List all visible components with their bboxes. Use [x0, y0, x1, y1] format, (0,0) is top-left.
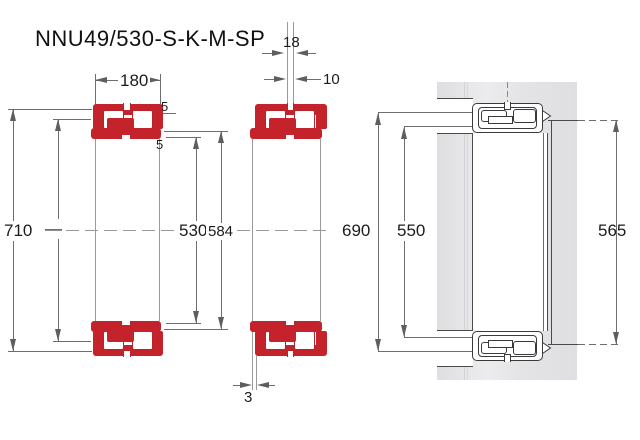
roller-right	[294, 331, 315, 350]
bore-centerline	[507, 82, 508, 103]
outer-ring-flange-right	[316, 331, 327, 356]
shaft-step-line	[543, 133, 544, 331]
roller-right	[132, 110, 153, 129]
roller-right-outline	[513, 109, 536, 123]
lubrication-slot	[504, 354, 511, 362]
inner-ring-groove	[285, 321, 295, 325]
clearance-band-top	[437, 98, 473, 134]
shaft-section	[472, 133, 548, 331]
dim-label-550: 550	[395, 221, 427, 241]
cage-step	[488, 116, 513, 124]
page-title: NNU49/530-S-K-M-SP	[35, 26, 265, 52]
lubrication-slot	[123, 103, 131, 110]
outer-ring-flange-right	[152, 331, 163, 356]
front-left-face-line	[95, 139, 96, 321]
sleeve-bottom-line	[548, 344, 578, 345]
lubrication-slot	[123, 350, 131, 357]
cage-step	[488, 340, 513, 348]
sleeve-edge-line	[551, 120, 552, 344]
roller-right	[132, 331, 153, 350]
dim-label-584: 584	[206, 223, 235, 240]
sleeve-top-line	[548, 120, 578, 121]
outer-ring-flange-right	[316, 104, 327, 129]
dim-label-5-top: 5	[160, 100, 169, 115]
cage-block	[107, 329, 134, 342]
offset-left-face-line	[252, 139, 253, 390]
dim-label-530: 530	[177, 221, 209, 241]
dim-label-690: 690	[340, 221, 372, 241]
cage-block	[269, 329, 296, 342]
lubrication-slot	[287, 103, 294, 110]
front-right-face-line	[159, 139, 160, 321]
roller-right	[294, 110, 315, 129]
inner-ring-groove	[285, 135, 295, 139]
dim-label-10: 10	[321, 71, 342, 88]
dim-label-5-bottom: 5	[155, 138, 164, 153]
dim-label-180: 180	[118, 71, 150, 91]
dim-label-3: 3	[242, 389, 254, 406]
roller-right-outline	[513, 341, 536, 355]
ring-tip	[542, 110, 552, 122]
offset-right-face-line	[320, 139, 321, 321]
dim-label-dash: —	[43, 219, 64, 239]
dim-label-565: 565	[596, 221, 628, 241]
dim-label-710: 710	[2, 221, 34, 241]
inner-ring-groove	[121, 135, 131, 139]
inner-ring-groove	[121, 321, 131, 325]
lubrication-slot	[504, 102, 511, 110]
dim-label-18: 18	[281, 34, 302, 51]
clearance-band-bottom	[437, 330, 473, 367]
ring-tip	[542, 342, 552, 354]
bearing-technical-drawing: NNU49/530-S-K-M-SP	[0, 0, 640, 440]
lubrication-slot	[287, 350, 294, 357]
